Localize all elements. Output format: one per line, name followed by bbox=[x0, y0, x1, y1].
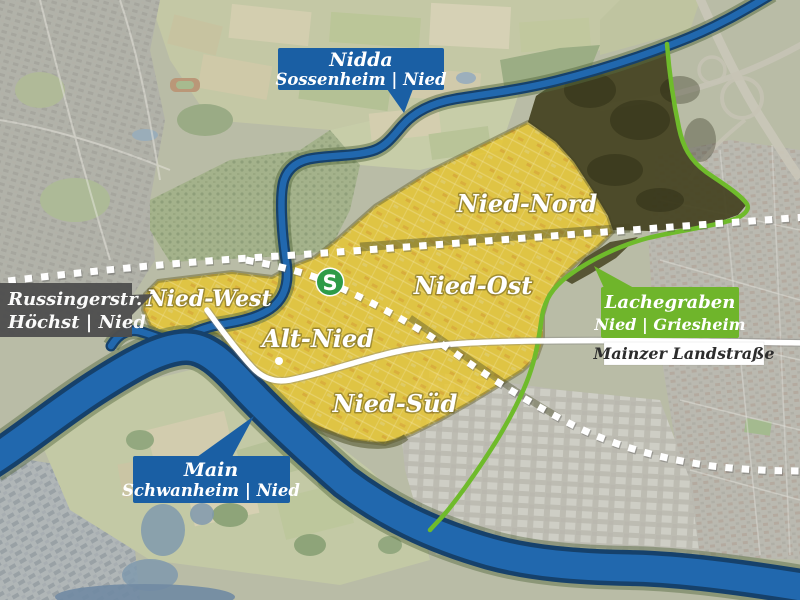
callout-russingerstr-line2: Höchst | Nied bbox=[7, 312, 146, 333]
callout-nidda-line2: Sossenheim | Nied bbox=[275, 70, 447, 89]
map-root: S Nied-Nord Nied-Ost Nied-West Alt-Nied … bbox=[0, 0, 800, 600]
callout-nidda-line1: Nidda bbox=[328, 49, 392, 71]
label-nied-nord: Nied-Nord bbox=[456, 189, 598, 218]
callout-lachegraben-line1: Lachegraben bbox=[604, 292, 736, 313]
label-nied-ost: Nied-Ost bbox=[413, 271, 533, 300]
label-nied-sued: Nied-Süd bbox=[332, 389, 458, 418]
callout-russingerstr-line1: Russingerstr. bbox=[7, 289, 142, 310]
sbahn-station-icon: S bbox=[316, 268, 345, 297]
callout-main-line1: Main bbox=[183, 459, 238, 481]
callout-main-line2: Schwanheim | Nied bbox=[122, 481, 300, 500]
label-alt-nied: Alt-Nied bbox=[260, 324, 374, 353]
callout-lachegraben-line2: Nied | Griesheim bbox=[593, 315, 745, 334]
street-label-text: Mainzer Landstraße bbox=[592, 344, 774, 363]
label-nied-west: Nied-West bbox=[145, 286, 271, 312]
alt-nied-center-dot bbox=[275, 357, 283, 365]
street-label-mainzer-landstrasse: Mainzer Landstraße bbox=[592, 342, 774, 365]
callout-russingerstr: Russingerstr. Höchst | Nied bbox=[0, 283, 153, 337]
map-canvas: S Nied-Nord Nied-Ost Nied-West Alt-Nied … bbox=[0, 0, 800, 600]
sbahn-s-letter: S bbox=[322, 271, 337, 295]
